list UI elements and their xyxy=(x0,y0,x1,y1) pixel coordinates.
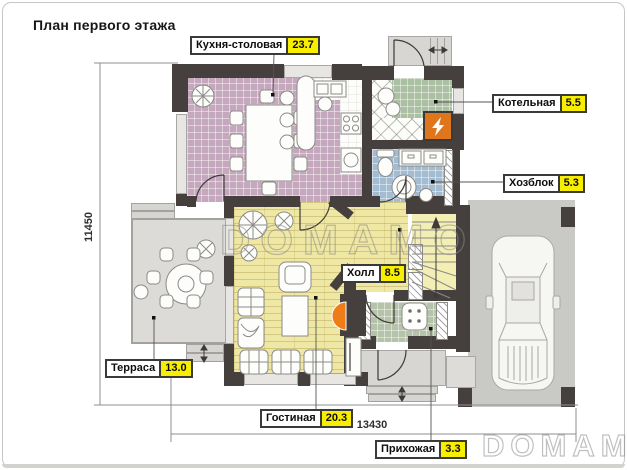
room-name: Гостиная xyxy=(262,411,320,426)
dishwasher-icon xyxy=(341,148,361,172)
toilet-icon xyxy=(377,150,394,177)
car xyxy=(486,236,560,390)
room-name: Котельная xyxy=(494,96,560,111)
watermark-center: DOMAMO xyxy=(220,216,476,264)
shoe-cabinet xyxy=(402,303,427,330)
armchair xyxy=(279,262,311,292)
room-label-boiler: Котельная 5.5 xyxy=(492,94,587,113)
floor-plan-canvas: План первого этажа xyxy=(0,0,627,470)
room-label-hall: Холл 8.5 xyxy=(341,264,406,283)
room-name: Холл xyxy=(343,266,379,281)
kitchen-sink xyxy=(314,81,346,111)
dining-table-set xyxy=(230,90,307,195)
boiler-equipment xyxy=(378,88,400,116)
dimension-horizontal: 13430 xyxy=(350,419,394,431)
room-name: Кухня-столовая xyxy=(192,38,286,53)
room-name: Хозблок xyxy=(505,176,558,191)
room-label-entry: Прихожая 3.3 xyxy=(375,440,467,459)
fireplace xyxy=(332,294,366,336)
room-area: 13.0 xyxy=(159,361,190,376)
coffee-table xyxy=(282,296,308,336)
watermark-corner: DOMAMO xyxy=(482,428,627,464)
boiler-unit xyxy=(424,112,452,140)
room-area: 23.7 xyxy=(286,38,317,53)
room-area: 3.3 xyxy=(439,442,464,457)
room-area: 8.5 xyxy=(379,266,404,281)
room-area: 5.5 xyxy=(560,96,585,111)
stove-icon xyxy=(341,113,361,134)
laundry-counter xyxy=(399,149,446,166)
room-label-living: Гостиная 20.3 xyxy=(260,409,353,428)
dimension-vertical: 11450 xyxy=(83,204,95,250)
room-label-terrace: Терраса 13.0 xyxy=(105,359,193,378)
room-label-utility: Хозблок 5.3 xyxy=(503,174,585,193)
tv-cabinet xyxy=(346,338,361,376)
room-name: Прихожая xyxy=(377,442,439,457)
room-area: 20.3 xyxy=(320,411,351,426)
room-label-kitchen: Кухня-столовая 23.7 xyxy=(190,36,320,55)
room-area: 5.3 xyxy=(558,176,583,191)
shower-icon xyxy=(392,175,433,202)
room-name: Терраса xyxy=(107,361,159,376)
kitchen-island xyxy=(280,76,315,150)
